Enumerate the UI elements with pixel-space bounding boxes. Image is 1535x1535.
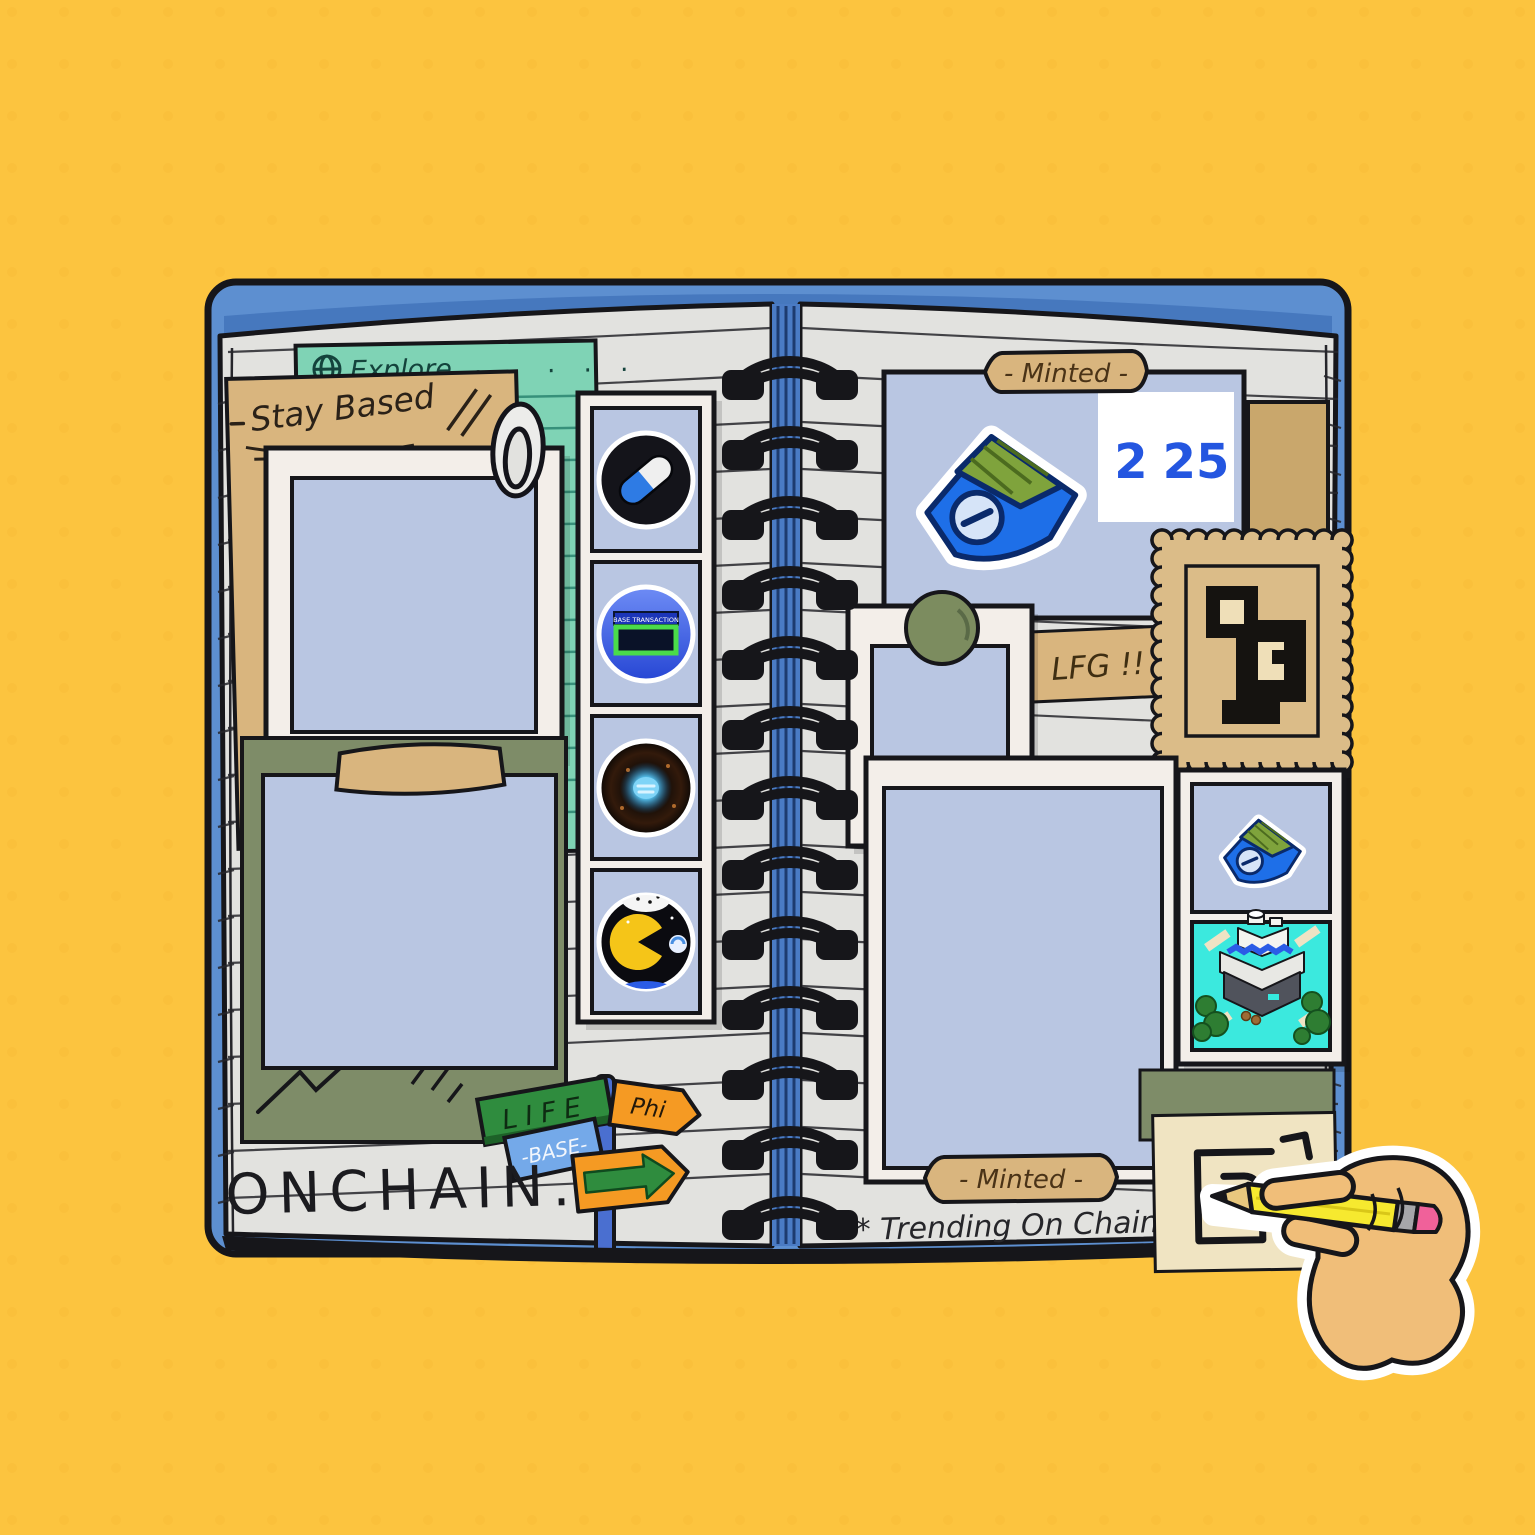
orb-icon bbox=[599, 741, 693, 835]
mini-gallery-frame bbox=[1178, 770, 1350, 1072]
lfg-label: LFG !! bbox=[1050, 646, 1146, 688]
base-transaction-icon: BASE TRANSACTION bbox=[599, 587, 693, 681]
illustration-canvas: Explore . . . . . Stay Based bbox=[0, 0, 1535, 1535]
minted-ribbon-bottom: - Minted - bbox=[925, 1155, 1117, 1202]
pill-icon bbox=[599, 433, 693, 527]
mint-number-right: 25 bbox=[1163, 434, 1230, 490]
minted-top-label: - Minted - bbox=[1004, 359, 1128, 389]
base-transaction-label: BASE TRANSACTION bbox=[613, 616, 679, 624]
empty-photo-1 bbox=[292, 478, 536, 732]
mint-number-left: 2 bbox=[1114, 434, 1147, 490]
sign-phi-label: Phi bbox=[629, 1093, 668, 1124]
minted-ribbon-top: - Minted - bbox=[985, 351, 1147, 392]
mint-count-card: 2 25 bbox=[1098, 392, 1234, 522]
phi-stamp bbox=[1152, 530, 1352, 772]
onchain-label: ONCHAIN. bbox=[225, 1154, 580, 1228]
notebook-illustration: Explore . . . . . Stay Based bbox=[0, 0, 1535, 1535]
empty-photo-4 bbox=[884, 788, 1162, 1168]
lower-photo-frame bbox=[866, 758, 1176, 1182]
film-strip: BASE TRANSACTION bbox=[578, 393, 722, 1030]
empty-photo-2 bbox=[263, 775, 556, 1068]
tape-strip bbox=[336, 743, 505, 795]
lfg-note: LFG !! bbox=[1030, 626, 1168, 702]
pixel-building-art bbox=[1192, 910, 1330, 1050]
minted-bottom-label: - Minted - bbox=[959, 1165, 1083, 1195]
